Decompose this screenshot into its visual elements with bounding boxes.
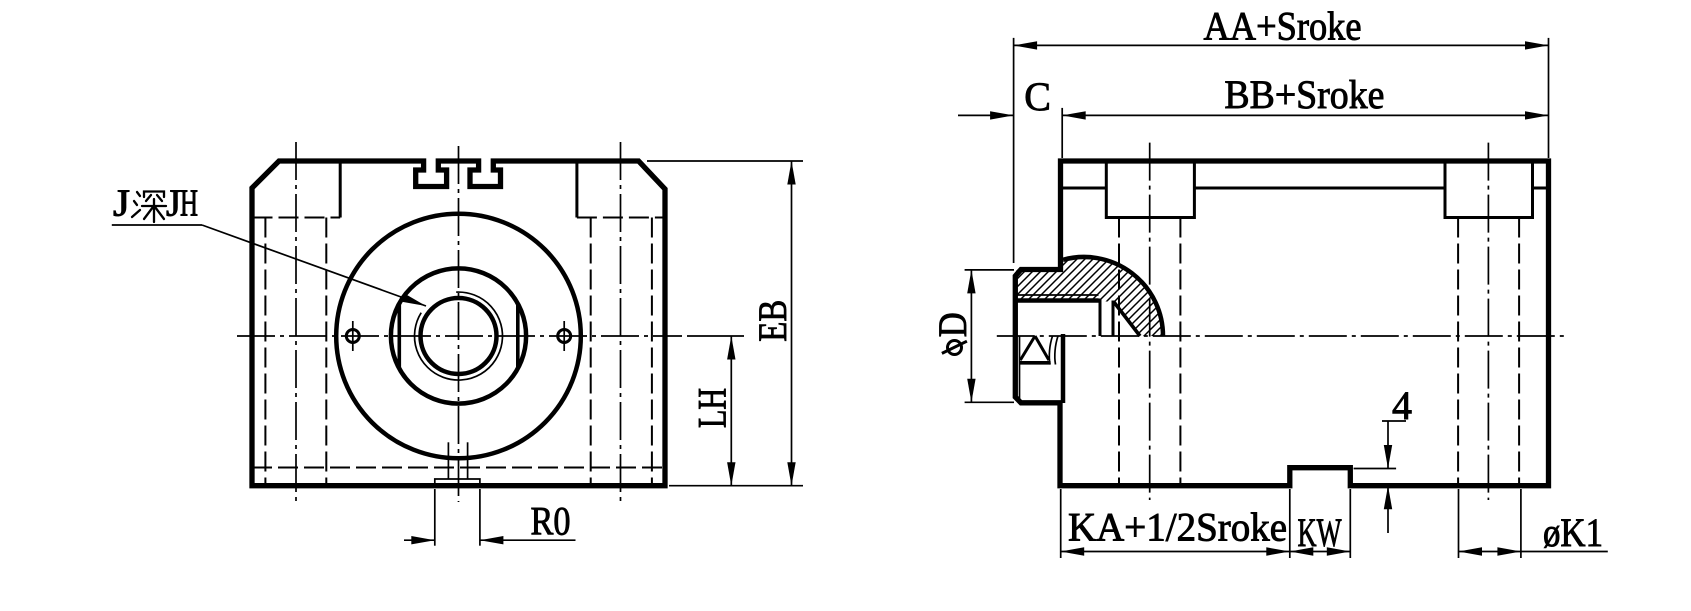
svg-text:KW: KW [1298, 510, 1342, 555]
svg-text:C: C [1024, 74, 1051, 119]
svg-text:EB: EB [750, 300, 795, 342]
svg-text:BB+Sroke: BB+Sroke [1224, 72, 1384, 117]
svg-text:J: J [113, 183, 130, 225]
svg-text:LH: LH [690, 388, 735, 428]
svg-text:øK1: øK1 [1543, 510, 1603, 555]
svg-text:R0: R0 [531, 499, 571, 544]
svg-text:J: J [166, 183, 181, 225]
svg-text:4: 4 [1392, 383, 1412, 428]
svg-text:H: H [180, 183, 198, 225]
svg-text:AA+Sroke: AA+Sroke [1204, 4, 1362, 49]
svg-text:KA+1/2Sroke: KA+1/2Sroke [1068, 505, 1287, 550]
svg-text:D: D [930, 312, 975, 337]
